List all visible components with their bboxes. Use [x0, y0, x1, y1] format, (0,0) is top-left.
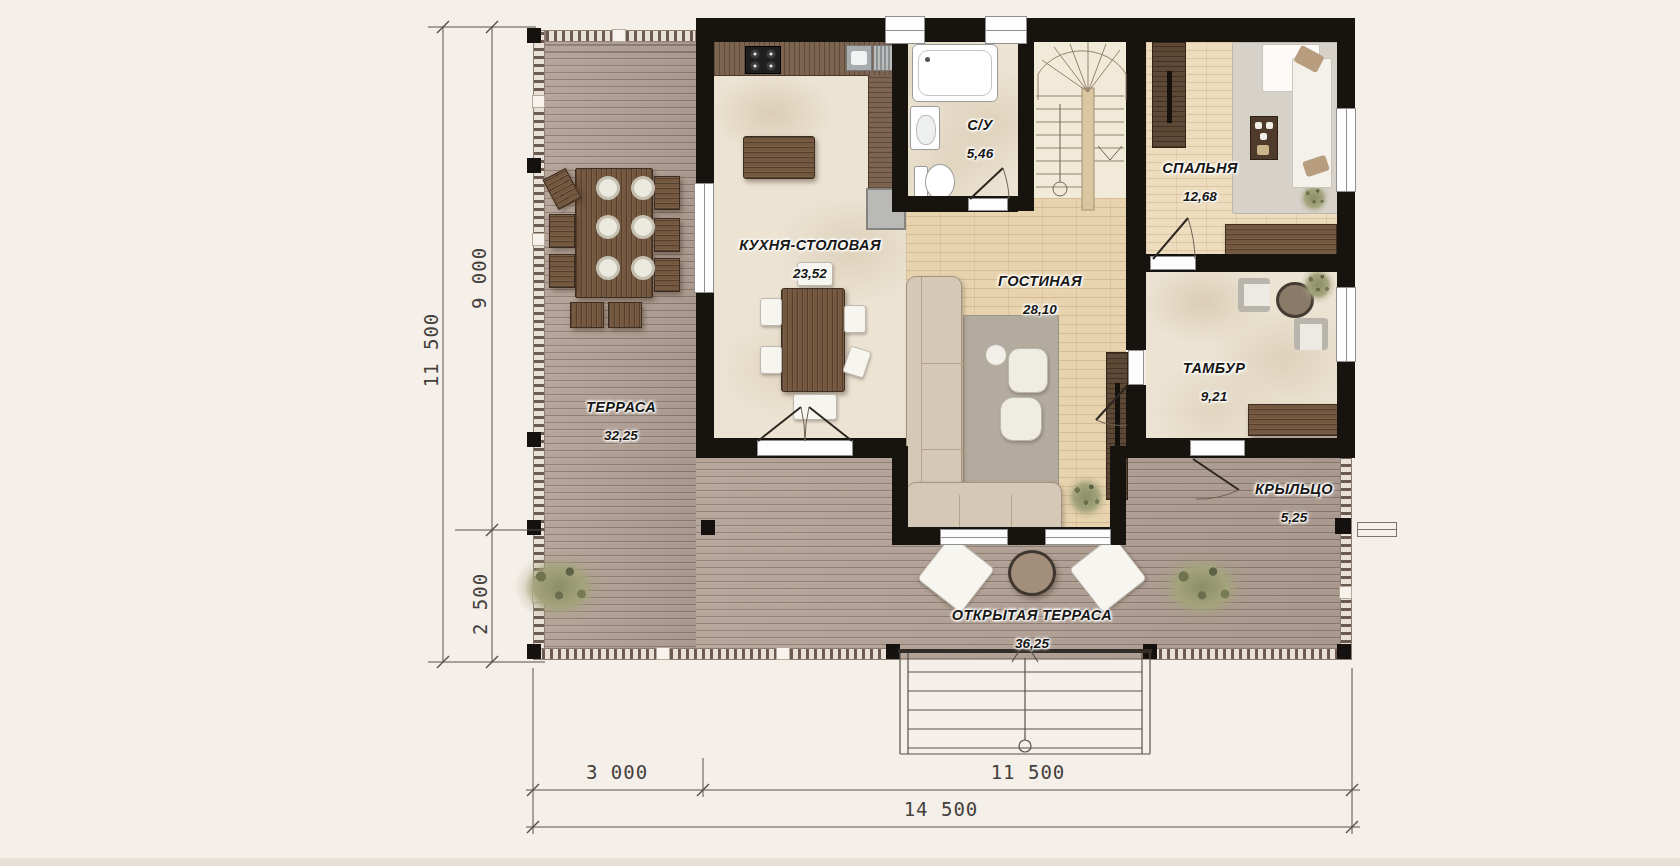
room-name: ТЕРРАСА	[586, 399, 656, 415]
bench	[1248, 404, 1340, 436]
terrace-chair	[654, 176, 680, 210]
room-area: 28,10	[998, 302, 1082, 317]
stove	[745, 46, 781, 74]
dim-left-outer: 11 500	[420, 313, 442, 388]
wall-vestibule-west-upper	[1126, 254, 1146, 350]
door-sill-bathroom	[968, 198, 1008, 211]
room-label-porch: КРЫЛЬЦО 5,25	[1255, 481, 1333, 525]
window-bay-2	[1045, 529, 1111, 545]
kitchen-sink	[846, 45, 872, 71]
room-area: 5,25	[1255, 510, 1333, 525]
railing-post	[532, 95, 545, 108]
deck-post	[527, 520, 541, 535]
room-name: КРЫЛЬЦО	[1255, 481, 1333, 497]
plate	[631, 256, 655, 280]
terrace-chair	[549, 254, 575, 288]
stairs-floor	[1034, 42, 1126, 211]
room-name: КУХНЯ-СТОЛОВАЯ	[739, 237, 881, 253]
door-sill-bedroom	[1150, 256, 1196, 270]
plate	[596, 215, 620, 239]
dim-bottom-left: 3 000	[586, 761, 648, 783]
floor-plan: ТЕРРАСА 32,25 КУХНЯ-СТОЛОВАЯ 23,52 С/У 5…	[0, 0, 1680, 866]
coffee-table	[1008, 348, 1048, 393]
side-table	[985, 344, 1007, 366]
deck-post	[527, 644, 541, 659]
deck-post	[701, 520, 715, 535]
room-area: 9,21	[1183, 389, 1246, 404]
plant	[1064, 474, 1108, 520]
round-table	[1008, 550, 1056, 596]
deck-post	[527, 432, 541, 447]
dining-chair	[760, 346, 782, 374]
railing-post	[776, 647, 790, 660]
wall-east	[1337, 18, 1355, 458]
room-area: 36,25	[952, 636, 1112, 651]
terrace-chair	[654, 218, 680, 252]
room-label-kitchen: КУХНЯ-СТОЛОВАЯ 23,52	[739, 237, 881, 281]
room-label-bedroom: СПАЛЬНЯ 12,68	[1162, 160, 1238, 204]
deck-post	[1335, 518, 1351, 534]
room-area: 32,25	[586, 428, 656, 443]
room-name: ГОСТИНАЯ	[998, 273, 1082, 289]
page-edge	[0, 858, 1680, 866]
terrace-chair	[549, 214, 575, 248]
deck-post	[527, 28, 541, 43]
railing-post	[656, 647, 670, 660]
deck-post	[527, 158, 541, 173]
armchair	[1294, 318, 1328, 350]
door-sill-vestibule-west	[1128, 350, 1144, 385]
railing-post	[532, 233, 545, 246]
terrace-chair	[570, 302, 604, 328]
bedside-table	[1250, 116, 1278, 160]
window-west	[694, 183, 714, 293]
armchair	[1238, 278, 1270, 312]
wardrobe	[1152, 42, 1186, 148]
door-sill-vestibule-south	[1190, 440, 1245, 456]
room-area: 5,46	[967, 146, 993, 161]
window-east-vestibule	[1336, 287, 1356, 362]
dining-table	[781, 288, 845, 392]
plant	[514, 552, 604, 622]
window-north-1	[885, 16, 925, 44]
dresser	[1225, 224, 1337, 256]
dining-chair	[760, 298, 782, 326]
terrace-chair	[608, 302, 642, 328]
room-label-vestibule: ТАМБУР 9,21	[1183, 360, 1246, 404]
side-step	[1357, 522, 1397, 537]
railing-bottom-left	[533, 648, 900, 660]
room-area: 12,68	[1162, 189, 1238, 204]
railing-bottom-right	[1150, 648, 1352, 660]
room-label-living: ГОСТИНАЯ 28,10	[998, 273, 1082, 317]
kitchen-island	[743, 136, 815, 179]
window-north-2	[985, 16, 1027, 44]
plate	[596, 176, 620, 200]
room-name: СПАЛЬНЯ	[1162, 160, 1238, 176]
plate	[631, 176, 655, 200]
plate	[631, 215, 655, 239]
deck-post	[1337, 644, 1351, 659]
dim-left-lower: 2 500	[469, 573, 491, 635]
dim-left-upper: 9 000	[468, 247, 490, 309]
bathroom-sink	[910, 106, 940, 150]
toilet	[914, 162, 954, 200]
plant	[1156, 552, 1248, 622]
deck-post	[1143, 644, 1157, 659]
shower-tray	[912, 44, 998, 102]
dim-bottom-total: 14 500	[904, 798, 979, 820]
room-label-open-terrace: ОТКРЫТАЯ ТЕРРАСА 36,25	[952, 607, 1112, 651]
wall-stairs-west	[1018, 42, 1034, 211]
room-label-bathroom: С/У 5,46	[967, 117, 993, 161]
bay-wall-right	[1110, 446, 1126, 545]
railing-post	[612, 29, 626, 42]
room-name: ОТКРЫТАЯ ТЕРРАСА	[952, 607, 1112, 623]
dim-bottom-right: 11 500	[991, 761, 1066, 783]
railing-post	[1339, 586, 1352, 599]
window-bay-1	[940, 529, 1008, 545]
room-name: ТАМБУР	[1183, 360, 1246, 376]
wall-vestibule-west-lower	[1126, 385, 1146, 458]
wall-bedroom-west	[1126, 42, 1146, 256]
dining-chair	[844, 305, 866, 333]
wall-bathroom-west	[892, 42, 908, 211]
room-name: С/У	[967, 117, 993, 133]
coffee-table	[1000, 397, 1042, 441]
deck-post	[886, 644, 900, 659]
railing-right	[1340, 455, 1352, 660]
room-area: 23,52	[739, 266, 881, 281]
terrace-chair	[654, 258, 680, 292]
plate	[596, 256, 620, 280]
window-east-bedroom	[1336, 108, 1356, 192]
door-sill-kitchen-terrace	[757, 440, 853, 456]
dining-chair	[793, 394, 837, 420]
room-label-terrace: ТЕРРАСА 32,25	[586, 399, 656, 443]
